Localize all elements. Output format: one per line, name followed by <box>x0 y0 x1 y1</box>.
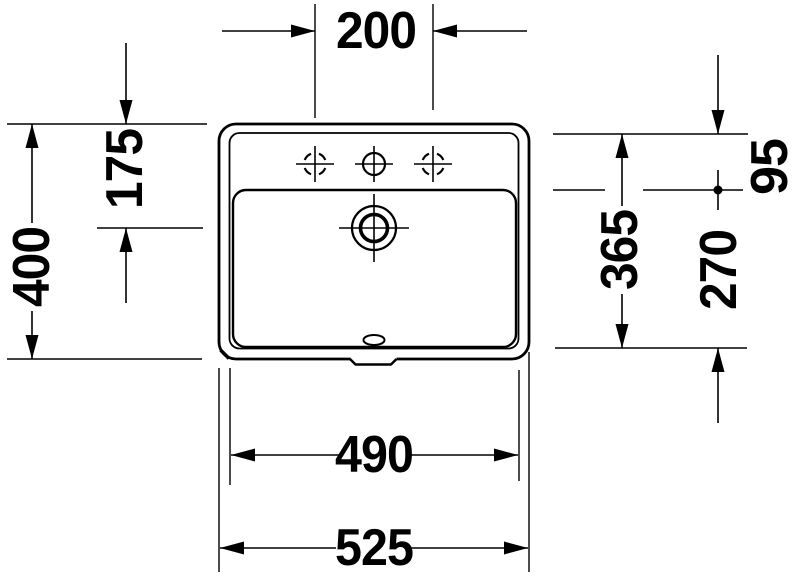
drain <box>339 194 409 262</box>
tap-hole-center <box>355 146 393 182</box>
sink-body <box>219 124 529 365</box>
dim-left-group: 400 175 <box>3 43 207 359</box>
dim-label-400: 400 <box>3 227 61 307</box>
technical-drawing-canvas: 200 400 175 365 95 270 49 <box>0 0 800 576</box>
tap-hole-right <box>414 146 452 182</box>
tap-hole-left <box>296 146 334 182</box>
tab-mask <box>351 356 397 362</box>
dim-label-270: 270 <box>690 230 748 310</box>
dim-label-95: 95 <box>741 139 799 195</box>
corner-chamfer <box>221 350 230 359</box>
dim-dot-95 <box>714 186 723 195</box>
dim-label-365: 365 <box>591 210 649 290</box>
dim-label-490: 490 <box>335 426 413 484</box>
dim-tap-hole-spacing: 200 <box>222 2 527 118</box>
washbasin-drawing: 200 400 175 365 95 270 49 <box>0 0 800 576</box>
dim-label-200: 200 <box>336 2 416 60</box>
overflow-hole <box>364 335 385 345</box>
dim-label-175: 175 <box>96 129 154 209</box>
dim-label-525: 525 <box>335 519 413 576</box>
dim-bottom-group: 490 525 <box>219 352 529 576</box>
dim-right-group: 365 95 270 <box>553 55 799 423</box>
